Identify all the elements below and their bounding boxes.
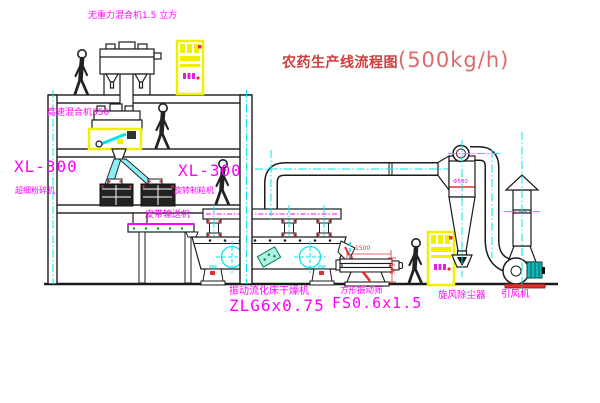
flow-diagram: 农药生产线流程图(500kg/h) 无重力混合机1.5 立方 高速混合机350 …: [0, 0, 600, 403]
dim-sifter-length: 1500: [355, 246, 370, 252]
title-capacity: (500kg/h): [398, 48, 509, 72]
control-cabinet-upper: [177, 41, 203, 94]
belt-conveyor: [128, 224, 198, 283]
person-icon: [75, 50, 88, 94]
cyclone-to-fan-pipe: [470, 154, 516, 268]
person-icon: [409, 239, 422, 283]
label-granulator-name: 旋转制粒机: [174, 187, 214, 195]
label-belt-conveyor: 皮带输送机: [145, 211, 190, 220]
dim-cyclone-diameter: Φ580: [453, 180, 468, 186]
diagram-title: 农药生产线流程图(500kg/h): [282, 50, 509, 71]
dim-sifter-height: 545: [388, 263, 394, 274]
label-high-speed-mixer: 高速混合机350: [47, 109, 109, 118]
fluid-bed-dryer: [192, 209, 355, 285]
label-fan-name: 引风机: [501, 290, 530, 300]
label-pulverizer-name: 超细粉碎机: [15, 187, 55, 195]
person-icon: [156, 104, 169, 148]
label-gravity-mixer: 无重力混合机1.5 立方: [88, 12, 177, 21]
control-cabinet-lower: [428, 232, 454, 285]
label-pulverizer-model: XL-300: [14, 159, 78, 175]
label-granulator-model: XL-300: [178, 163, 242, 179]
title-text: 农药生产线流程图: [282, 55, 398, 71]
label-cyclone-name: 旋风除尘器: [438, 291, 486, 301]
label-sifter-model: FS0.6x1.5: [332, 296, 422, 311]
label-dryer-model: ZLG6x0.75: [229, 298, 325, 314]
